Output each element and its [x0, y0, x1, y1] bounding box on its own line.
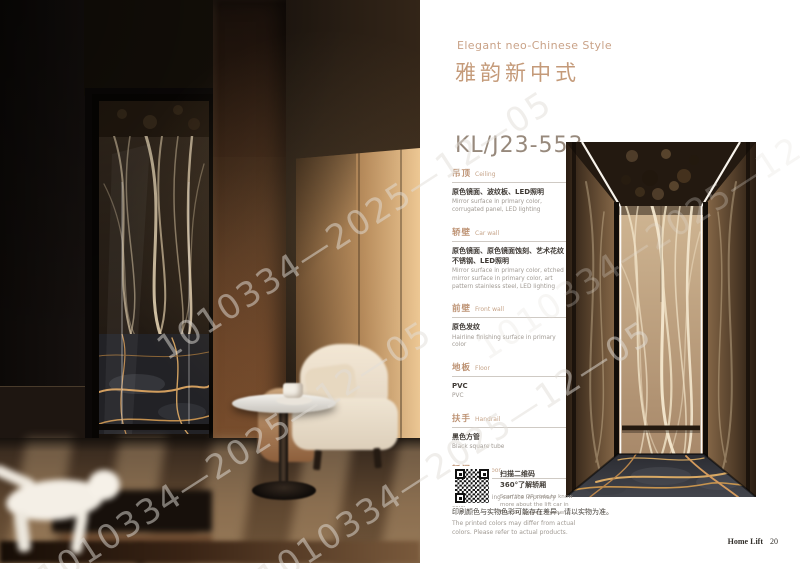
model-number: KL/J23-553: [455, 133, 584, 158]
spec-desc-en: Black square tube: [452, 444, 568, 452]
cat-head: [88, 470, 120, 500]
upper-wall: [84, 0, 224, 96]
spec-title-zh: 前壁: [452, 302, 471, 314]
qr-caption-zh-2: 360°了解轿厢: [500, 480, 578, 491]
style-title-zh: 雅韵新中式: [455, 57, 580, 87]
spec-desc-zh: 原色镜面、波纹板、LED照明: [452, 187, 568, 197]
qr-caption-zh-1: 扫描二维码: [500, 469, 578, 480]
catalog-page: Elegant neo-Chinese Style 雅韵新中式 KL/J23-5…: [0, 0, 800, 569]
spec-desc-en: Mirror surface in primary color, corruga…: [452, 199, 568, 215]
catalog-panel: Elegant neo-Chinese Style 雅韵新中式 KL/J23-5…: [420, 0, 800, 569]
spec-desc-zh: 原色镜面、原色镜面蚀刻、艺术花纹不锈钢、LED照明: [452, 246, 568, 266]
spec-divider: [452, 182, 568, 183]
chair-leg: [373, 448, 382, 469]
spec-divider: [452, 427, 568, 428]
lift-car-render: [566, 142, 756, 497]
table-stem: [279, 408, 288, 488]
spec-title-en: Handrail: [475, 416, 500, 423]
side-table: [226, 378, 342, 503]
style-subtitle-en: Elegant neo-Chinese Style: [457, 39, 612, 52]
spec-desc-en: Mirror surface in primary color, etched …: [452, 268, 568, 291]
spec-divider: [452, 317, 568, 318]
coffee-cup: [283, 383, 303, 398]
spec-section-car-wall: 轿壁Car wall 原色镜面、原色镜面蚀刻、艺术花纹不锈钢、LED照明 Mir…: [452, 226, 568, 292]
spec-title-en: Floor: [475, 365, 490, 372]
page-number: 20: [770, 537, 778, 546]
qr-finder: [479, 469, 489, 479]
disclaimer-zh: 印刷颜色与实物色彩可能存在差异，请以实物为准。: [452, 507, 622, 517]
spec-divider: [452, 376, 568, 377]
spec-desc-zh: 黑色方管: [452, 432, 568, 442]
disclaimer-en: The printed colors may differ from actua…: [452, 520, 580, 537]
spec-section-handrail: 扶手Handrail 黑色方管 Black square tube: [452, 412, 568, 452]
spec-title-zh: 轿壁: [452, 226, 471, 238]
spec-desc-en: PVC: [452, 393, 568, 401]
qr-finder: [455, 469, 465, 479]
white-cat: [0, 462, 140, 563]
panel-shadow: [296, 148, 356, 288]
spec-section-ceiling: 吊顶Ceiling 原色镜面、波纹板、LED照明 Mirror surface …: [452, 167, 568, 215]
spec-desc-zh: 原色发纹: [452, 322, 568, 332]
spec-section-floor: 地板Floor PVC PVC: [452, 361, 568, 401]
spec-title-zh: 扶手: [452, 412, 471, 424]
qr-code: [452, 466, 492, 506]
qr-finder: [455, 493, 465, 503]
living-room-photo: [0, 0, 420, 563]
spec-title-zh: 吊顶: [452, 167, 471, 179]
spec-title-en: Ceiling: [475, 171, 496, 178]
disclaimer: 印刷颜色与实物色彩可能存在差异，请以实物为准。 The printed colo…: [452, 507, 622, 537]
home-lift-in-photo: [92, 94, 216, 446]
spec-desc-zh: PVC: [452, 381, 568, 391]
spec-title-en: Front wall: [475, 306, 504, 313]
brand-name: Home Lift: [728, 537, 763, 546]
spec-divider: [452, 241, 568, 242]
spec-desc-en: Hairline finishing surface in primary co…: [452, 335, 568, 351]
spec-title-zh: 地板: [452, 361, 471, 373]
spec-section-front-wall: 前壁Front wall 原色发纹 Hairline finishing sur…: [452, 302, 568, 350]
page-footer: Home Lift 20: [728, 537, 778, 546]
table-base: [252, 481, 316, 500]
left-wall: [0, 0, 94, 440]
spec-title-en: Car wall: [475, 230, 499, 237]
